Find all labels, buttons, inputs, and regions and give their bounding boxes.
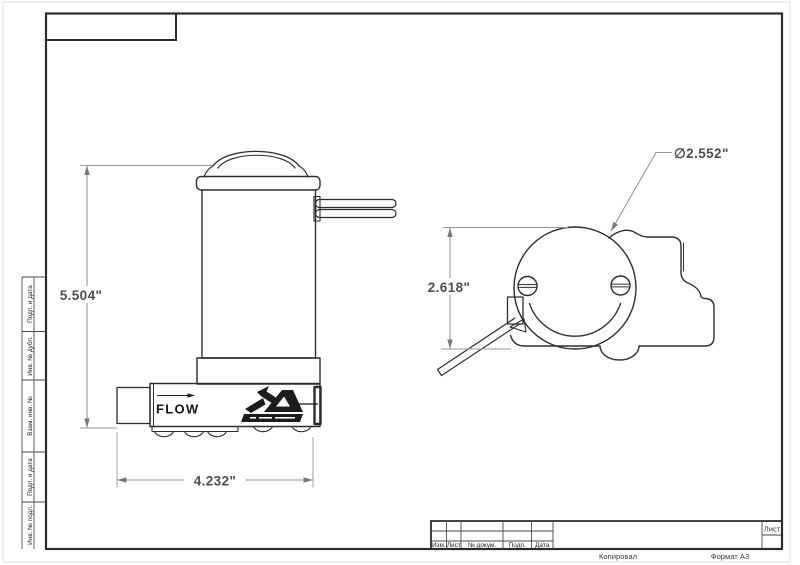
height-dimension-label: 2.618" — [428, 280, 471, 295]
title-column-label: № докум. — [468, 542, 496, 549]
height-dimension-label: 5.504" — [60, 288, 103, 303]
copied-by-label: Копировал — [599, 552, 637, 561]
title-column-label: Лист — [447, 542, 461, 549]
logo-banner-text-dash — [259, 417, 272, 419]
sheet-border — [3, 2, 790, 562]
sidebar-label: Взам. инв. № — [27, 396, 34, 436]
engineering-drawing-svg: Подп. и дата Инв. № дубл. Взам. инв. № П… — [0, 0, 800, 565]
title-column-label: Дата — [535, 542, 550, 549]
format-label: Формат А3 — [711, 552, 749, 561]
sidebar-label: Подп. и дата — [27, 458, 34, 496]
sidebar-label: Инв. № дубл. — [26, 336, 34, 376]
flow-label: FLOW — [156, 402, 199, 417]
title-column-label: Подп. — [509, 542, 526, 549]
sidebar-label: Подп. и дата — [27, 285, 34, 323]
logo-banner-text-dash — [275, 417, 295, 419]
drawing-sheet: Подп. и дата Инв. № дубл. Взам. инв. № П… — [0, 0, 800, 565]
sheet-number-label: Лист — [764, 525, 781, 534]
diameter-dimension-label: ∅2.552" — [674, 146, 729, 161]
width-dimension-label: 4.232" — [194, 474, 237, 489]
sidebar-label: Инв. № подл. — [27, 505, 34, 545]
title-column-label: Изм. — [432, 542, 446, 549]
logo-banner-text-dash — [250, 417, 256, 419]
